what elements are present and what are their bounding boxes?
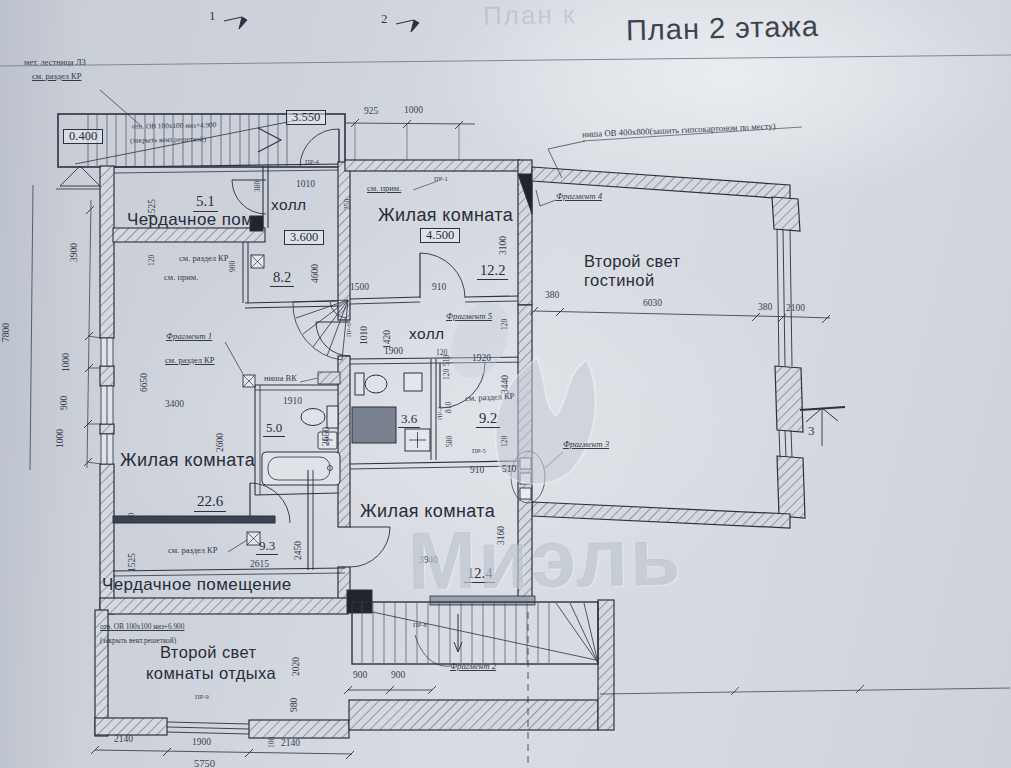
- note-vent-bottom-1: отв. ОВ 100х100 низ+6.900: [100, 623, 184, 631]
- note-metal-stair: мет. лестница Л3: [24, 58, 86, 67]
- axis-mark-1: 1: [209, 9, 216, 23]
- door-tag-pr3: ПР-3: [437, 406, 444, 420]
- dim-510-a: 510: [443, 355, 451, 366]
- door-tag-pr5: ПР-5: [472, 448, 486, 455]
- dim-925: 925: [364, 107, 378, 117]
- dim-1010-a: 1010: [296, 180, 315, 190]
- page-title: План 2 этажа: [626, 11, 820, 46]
- elevation-3550: 3.550: [286, 110, 326, 125]
- dim-580: 580: [446, 436, 454, 447]
- dim-2140-a: 2140: [114, 735, 133, 745]
- door-tag-pr1: ПР-1: [434, 176, 448, 183]
- door-tag-pr6: ПР-6: [346, 323, 353, 337]
- note-vent-top-1: отв. ОВ 100х100 низ+4.900: [132, 121, 217, 130]
- floorplan-sheet: План к 1 2 План 2 этажа мет. лестница Л3…: [0, 0, 1011, 768]
- dim-900-c: 900: [353, 671, 367, 681]
- dim-2020: 2020: [292, 657, 302, 676]
- room-living-top: Жилая комната: [378, 206, 513, 225]
- dim-1500: 1500: [350, 283, 369, 293]
- note-see-kr-93: см. раздел КР: [168, 546, 218, 555]
- area-bath-small: 3.6: [398, 412, 420, 428]
- dim-6650: 6650: [140, 373, 150, 392]
- room-second-light-living-2: гостиной: [584, 272, 655, 289]
- dim-120-c: 120: [443, 369, 451, 380]
- top-dim-line: [345, 119, 475, 160]
- dim-2615: 2615: [250, 560, 269, 570]
- elevation-4500: 4.500: [420, 228, 460, 243]
- dim-1900-b: 1900: [192, 738, 211, 748]
- elevation-0400: 0.400: [63, 129, 103, 144]
- dim-910-b: 910: [470, 466, 484, 476]
- note-see-prim-hall: см. прим.: [164, 273, 198, 282]
- watermark-text: Миэль: [407, 510, 683, 609]
- dim-1000-top: 1000: [404, 106, 423, 116]
- fragment-2: Фрагмент 2: [450, 662, 496, 671]
- fragment-1: Фрагмент 1: [166, 332, 212, 341]
- dim-380-c: 380: [758, 303, 772, 313]
- area-living-left: 22.6: [194, 494, 226, 512]
- dim-250: 250: [344, 199, 352, 210]
- dim-6030: 6030: [643, 299, 662, 309]
- dim-1525-b: 1525: [128, 553, 138, 572]
- room-attic-bottom: Чердачное помещение: [102, 576, 292, 594]
- dim-2140-b: 2140: [281, 739, 300, 749]
- note-niche-vk: ниша ВК: [264, 374, 297, 383]
- dim-2650: 2650: [322, 427, 332, 446]
- dim-100: 100: [268, 737, 276, 748]
- fragment-4: Фрагмент 4: [556, 192, 602, 201]
- axis-mark-2: 2: [381, 12, 388, 26]
- dim-1010-b: 1010: [360, 326, 370, 345]
- dim-2100: 2100: [786, 304, 805, 314]
- dim-810: 810: [445, 402, 453, 413]
- dim-900-d: 900: [391, 671, 405, 681]
- dim-1525-a: 1525: [148, 199, 158, 218]
- dim-1000-b: 1000: [56, 429, 66, 448]
- bathroom-50: [250, 372, 340, 523]
- dim-3100: 3100: [499, 236, 509, 255]
- dim-1920: 1920: [472, 354, 491, 364]
- door-tag-pr8: ПР-8: [413, 622, 427, 629]
- dim-4600: 4600: [311, 264, 321, 283]
- note-vent-top-2: (закрыть вент.решеткой): [130, 135, 206, 144]
- dim-1910: 1910: [283, 397, 302, 407]
- note-see-kr-frag1: см. раздел КР: [165, 356, 215, 365]
- fragment-3: Фрагмент 3: [563, 440, 609, 449]
- door-tag-pr9: ПР-9: [195, 694, 209, 701]
- dim-7800: 7800: [2, 323, 12, 342]
- area-bath-50: 5.0: [263, 421, 285, 437]
- dim-3400: 3400: [165, 400, 184, 410]
- fragment-5: Фрагмент 5: [446, 312, 492, 321]
- note-see-kr-stair: см. раздел КР: [32, 72, 82, 81]
- area-living-top: 12.2: [477, 263, 508, 280]
- dim-1420: 1420: [383, 330, 393, 349]
- room-second-light-living-1: Второй свет: [584, 253, 681, 270]
- dim-510-b: 510: [502, 465, 516, 475]
- room-second-light-rest-1: Второй свет: [160, 644, 257, 661]
- note-see-prim-living-top: см. прим.: [367, 184, 401, 193]
- axis-mark-icons: [224, 17, 419, 32]
- dim-900-a: 900: [60, 396, 70, 410]
- left-exterior-wall: [100, 166, 114, 614]
- section-marker-3: 3: [808, 424, 815, 438]
- dim-3900: 3900: [70, 243, 80, 262]
- dim-120-e: 120: [501, 436, 509, 447]
- dim-120-a: 120: [148, 255, 156, 266]
- room-living-left: Жилая комната: [120, 451, 255, 470]
- dim-980: 980: [290, 698, 300, 712]
- ghost-page-title: План к: [483, 1, 577, 30]
- room-second-light-rest-2: комнаты отдыха: [146, 665, 276, 682]
- dim-1000-a: 1000: [62, 353, 72, 372]
- dim-380-a: 380: [254, 181, 262, 192]
- dim-380-b: 380: [545, 291, 559, 301]
- dim-5750: 5750: [194, 758, 215, 768]
- dim-120-d: 120: [501, 319, 509, 330]
- dim-2450: 2450: [294, 541, 304, 560]
- door-tag-pr4: ПР-4: [305, 159, 319, 166]
- area-hall-top: 8.2: [270, 270, 294, 287]
- dim-120-f: 120: [128, 513, 136, 524]
- dim-910-a: 910: [432, 283, 446, 293]
- dim-900-b: 900: [229, 261, 237, 272]
- room-hall-top: холл: [271, 197, 307, 213]
- sheet-edge-line: [0, 55, 1011, 66]
- left-dim-chain: [30, 185, 101, 470]
- area-room-93: 9.3: [256, 539, 278, 555]
- area-room-92: 9.2: [476, 411, 500, 428]
- elevation-3600: 3.600: [284, 230, 324, 245]
- note-see-kr-hall: см. раздел КР: [179, 254, 229, 263]
- room-hall-mid: холл: [409, 326, 445, 342]
